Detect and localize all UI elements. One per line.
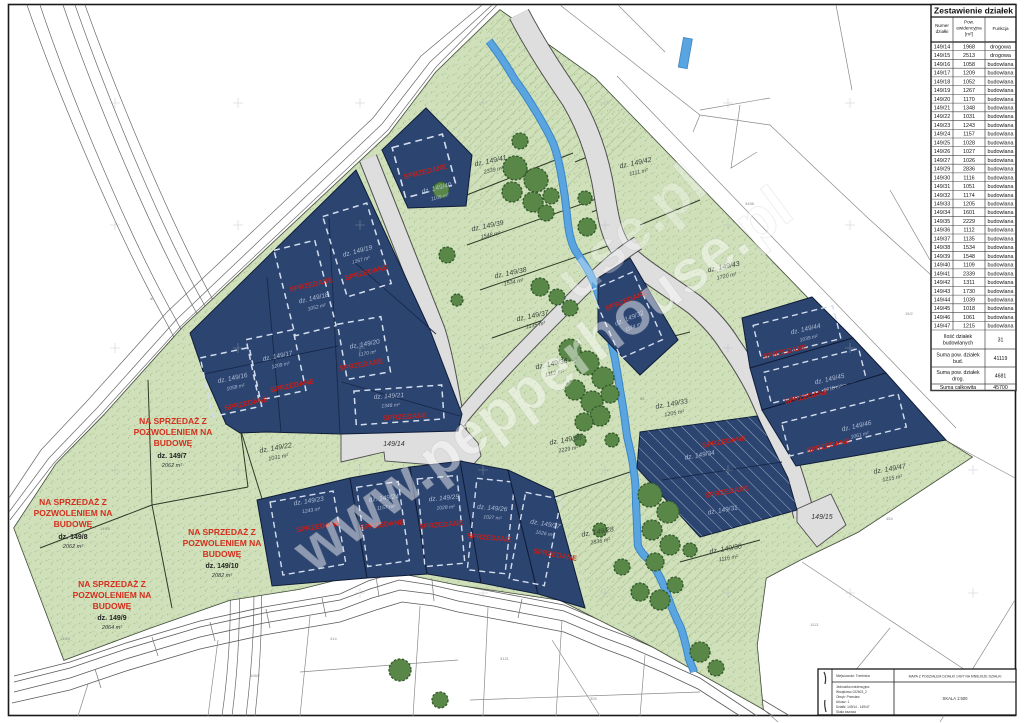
- svg-text:1027: 1027: [963, 149, 975, 155]
- svg-text:drogowa: drogowa: [990, 53, 1011, 59]
- svg-text:149/46: 149/46: [934, 315, 951, 321]
- svg-text:15/2: 15/2: [905, 311, 914, 316]
- svg-text:budowlana: budowlana: [987, 97, 1013, 103]
- svg-text:1135: 1135: [963, 236, 975, 242]
- svg-text:budowlana: budowlana: [987, 167, 1013, 173]
- svg-text:149/37: 149/37: [934, 236, 951, 242]
- svg-text:1028: 1028: [963, 140, 975, 146]
- svg-text:149/21: 149/21: [934, 106, 951, 112]
- svg-text:149/38: 149/38: [934, 245, 951, 251]
- svg-text:Funkcja: Funkcja: [992, 26, 1009, 31]
- svg-text:149/31: 149/31: [934, 184, 951, 190]
- svg-text:149/14: 149/14: [934, 44, 951, 50]
- svg-text:2082 m²: 2082 m²: [211, 573, 232, 579]
- svg-text:bud.: bud.: [953, 359, 963, 365]
- svg-text:budowlana: budowlana: [987, 263, 1013, 269]
- svg-text:budowlana: budowlana: [987, 184, 1013, 190]
- svg-text:Suma pow. działek: Suma pow. działek: [936, 370, 980, 376]
- svg-text:1112: 1112: [963, 228, 974, 234]
- svg-text:Arkusz: 1: Arkusz: 1: [836, 700, 850, 704]
- svg-text:1039: 1039: [963, 298, 975, 304]
- svg-text:budowlana: budowlana: [987, 324, 1013, 330]
- svg-text:Obręb: Przecław: Obręb: Przecław: [836, 695, 860, 699]
- svg-text:budowlana: budowlana: [987, 271, 1013, 277]
- svg-text:budowlana: budowlana: [987, 236, 1013, 242]
- svg-text:budowlana: budowlana: [987, 71, 1013, 77]
- svg-text:1311: 1311: [963, 280, 975, 286]
- svg-text:41119: 41119: [994, 356, 1008, 362]
- svg-text:1174: 1174: [963, 193, 975, 199]
- svg-text:budowlana: budowlana: [987, 306, 1013, 312]
- svg-text:Działki: 149/14 - 149/47: Działki: 149/14 - 149/47: [836, 705, 870, 709]
- svg-text:4681: 4681: [995, 373, 1007, 379]
- svg-text:NA SPRZEDAŻ Z: NA SPRZEDAŻ Z: [39, 497, 107, 507]
- svg-text:1051: 1051: [963, 184, 975, 190]
- svg-text:2229: 2229: [963, 219, 975, 225]
- svg-text:1052: 1052: [963, 79, 975, 85]
- svg-text:2062 m²: 2062 m²: [161, 463, 182, 469]
- svg-text:BUDOWĘ: BUDOWĘ: [203, 549, 242, 559]
- svg-text:Wrzątkowo 022603_2: Wrzątkowo 022603_2: [836, 690, 867, 694]
- svg-text:Numer: Numer: [935, 23, 949, 28]
- svg-text:1730: 1730: [963, 289, 975, 295]
- svg-text:1209: 1209: [963, 71, 975, 77]
- svg-text:149/17: 149/17: [934, 71, 951, 77]
- svg-text:2339: 2339: [963, 271, 975, 277]
- svg-text:budowlana: budowlana: [987, 298, 1013, 304]
- svg-text:149/34: 149/34: [934, 210, 951, 216]
- svg-text:149/23: 149/23: [934, 123, 951, 129]
- svg-text:31: 31: [998, 337, 1004, 343]
- svg-text:dz. 149/10: dz. 149/10: [205, 563, 238, 570]
- svg-text:budowlana: budowlana: [987, 210, 1013, 216]
- svg-text:budowlana: budowlana: [987, 254, 1013, 260]
- svg-text:działki: działki: [936, 29, 949, 34]
- svg-text:budowlana: budowlana: [987, 132, 1013, 138]
- svg-text:1215: 1215: [963, 324, 975, 330]
- svg-text:NA SPRZEDAŻ Z: NA SPRZEDAŻ Z: [78, 579, 146, 589]
- svg-text:budowlana: budowlana: [987, 158, 1013, 164]
- svg-text:POZWOLENIEM NA: POZWOLENIEM NA: [73, 590, 152, 600]
- svg-text:149/39: 149/39: [934, 254, 951, 260]
- svg-text:149/29: 149/29: [934, 167, 951, 173]
- svg-text:2064 m²: 2064 m²: [101, 625, 122, 631]
- svg-text:budowlana: budowlana: [987, 315, 1013, 321]
- svg-text:2836: 2836: [963, 167, 975, 173]
- svg-text:149/26: 149/26: [934, 149, 951, 155]
- svg-text:budowlana: budowlana: [987, 202, 1013, 208]
- svg-text:1968: 1968: [963, 44, 975, 50]
- svg-text:budowlana: budowlana: [987, 175, 1013, 181]
- svg-text:NA SPRZEDAŻ Z: NA SPRZEDAŻ Z: [188, 527, 256, 537]
- svg-text:1109: 1109: [963, 263, 975, 269]
- svg-text:149/18: 149/18: [934, 79, 951, 85]
- svg-text:POZWOLENIEM NA: POZWOLENIEM NA: [34, 508, 113, 518]
- svg-text:drog.: drog.: [952, 376, 964, 382]
- svg-text:149/30: 149/30: [934, 175, 951, 181]
- svg-text:2062 m²: 2062 m²: [62, 544, 83, 550]
- svg-text:1116: 1116: [963, 175, 974, 181]
- svg-text:budowlanych: budowlanych: [943, 340, 973, 346]
- svg-text:dz. 149/9: dz. 149/9: [97, 615, 126, 622]
- svg-text:budowlana: budowlana: [987, 62, 1013, 68]
- svg-text:NA SPRZEDAŻ Z: NA SPRZEDAŻ Z: [139, 416, 207, 426]
- svg-text:149/22: 149/22: [934, 114, 951, 120]
- svg-text:149/36: 149/36: [934, 228, 951, 234]
- svg-text:149/20: 149/20: [934, 97, 951, 103]
- svg-text:149/47: 149/47: [934, 324, 951, 330]
- svg-text:budowlana: budowlana: [987, 149, 1013, 155]
- svg-text:1348: 1348: [963, 106, 975, 112]
- svg-text:36: 36: [640, 396, 645, 401]
- svg-text:2513: 2513: [963, 53, 975, 59]
- svg-text:1170: 1170: [963, 97, 975, 103]
- svg-text:149/40: 149/40: [934, 263, 951, 269]
- svg-text:1113: 1113: [810, 622, 819, 627]
- svg-text:Ilość działek: Ilość działek: [944, 334, 973, 340]
- svg-text:budowlana: budowlana: [987, 140, 1013, 146]
- svg-text:budowlana: budowlana: [987, 106, 1013, 112]
- svg-text:Jednostka ewidencyjna:: Jednostka ewidencyjna:: [836, 685, 870, 689]
- svg-text:108/2: 108/2: [250, 673, 261, 678]
- svg-text:ewidencyjna: ewidencyjna: [956, 26, 982, 31]
- svg-text:SKALA 1:500: SKALA 1:500: [943, 696, 969, 701]
- svg-text:149/4: 149/4: [60, 636, 71, 641]
- svg-text:dz. 149/7: dz. 149/7: [157, 453, 186, 460]
- svg-text:BUDOWĘ: BUDOWĘ: [154, 438, 193, 448]
- svg-text:149/43: 149/43: [934, 289, 951, 295]
- svg-text:POZWOLENIEM NA: POZWOLENIEM NA: [183, 538, 262, 548]
- svg-text:MAPA Z PODZIAŁEM DZIAŁKI 149/7: MAPA Z PODZIAŁEM DZIAŁKI 149/7 NA MNIEJS…: [909, 675, 1002, 679]
- svg-text:budowlana: budowlana: [987, 79, 1013, 85]
- svg-text:budowlana: budowlana: [987, 280, 1013, 286]
- svg-text:Skala bazowa: Skala bazowa: [836, 710, 856, 714]
- svg-text:414: 414: [330, 636, 337, 641]
- svg-text:1548: 1548: [963, 254, 975, 260]
- svg-text:149/19: 149/19: [934, 88, 951, 94]
- svg-text:1018: 1018: [963, 306, 975, 312]
- svg-text:1157: 1157: [963, 132, 975, 138]
- svg-text:budowlana: budowlana: [987, 289, 1013, 295]
- svg-text:149/32: 149/32: [934, 193, 951, 199]
- svg-text:budowlana: budowlana: [987, 88, 1013, 94]
- svg-text:budowlana: budowlana: [987, 228, 1013, 234]
- svg-text:305: 305: [590, 696, 597, 701]
- svg-text:POZWOLENIEM NA: POZWOLENIEM NA: [134, 427, 213, 437]
- svg-text:1243: 1243: [963, 123, 975, 129]
- svg-text:3121: 3121: [500, 656, 510, 661]
- svg-text:149/15: 149/15: [811, 514, 833, 521]
- svg-text:1267: 1267: [963, 88, 975, 94]
- svg-text:Pow.: Pow.: [964, 20, 974, 25]
- svg-text:149/33: 149/33: [934, 202, 951, 208]
- svg-text:budowlana: budowlana: [987, 193, 1013, 199]
- svg-text:149/15: 149/15: [934, 53, 951, 59]
- svg-text:149/45: 149/45: [934, 306, 951, 312]
- svg-text:1205: 1205: [963, 202, 975, 208]
- svg-text:149/27: 149/27: [934, 158, 951, 164]
- svg-text:149/16: 149/16: [934, 62, 951, 68]
- svg-text:budowlana: budowlana: [987, 245, 1013, 251]
- svg-text:149/35: 149/35: [934, 219, 951, 225]
- svg-text:1601: 1601: [963, 210, 975, 216]
- svg-text:Suma pow. działek: Suma pow. działek: [936, 353, 980, 359]
- svg-text:[m²]: [m²]: [965, 32, 973, 37]
- svg-text:budowlana: budowlana: [987, 219, 1013, 225]
- svg-text:1031: 1031: [963, 114, 975, 120]
- svg-text:149/5: 149/5: [100, 526, 111, 531]
- svg-text:149/44: 149/44: [934, 298, 951, 304]
- svg-text:149/42: 149/42: [934, 280, 951, 286]
- svg-text:1058: 1058: [963, 62, 975, 68]
- svg-text:Zestawienie działek: Zestawienie działek: [934, 6, 1013, 16]
- svg-text:1061: 1061: [963, 315, 975, 321]
- svg-text:budowlana: budowlana: [987, 123, 1013, 129]
- svg-text:budowlana: budowlana: [987, 114, 1013, 120]
- svg-text:1026: 1026: [963, 158, 975, 164]
- svg-text:drogowa: drogowa: [990, 44, 1011, 50]
- svg-text:Miejscowość: Trzebnica: Miejscowość: Trzebnica: [836, 674, 870, 678]
- svg-text:dz. 149/8: dz. 149/8: [58, 534, 87, 541]
- svg-text:149/24: 149/24: [934, 132, 951, 138]
- svg-text:1534: 1534: [963, 245, 975, 251]
- svg-text:BUDOWĘ: BUDOWĘ: [54, 519, 93, 529]
- svg-text:149/25: 149/25: [934, 140, 951, 146]
- svg-text:149/41: 149/41: [934, 271, 951, 277]
- svg-text:BUDOWĘ: BUDOWĘ: [93, 601, 132, 611]
- svg-text:454: 454: [886, 516, 893, 521]
